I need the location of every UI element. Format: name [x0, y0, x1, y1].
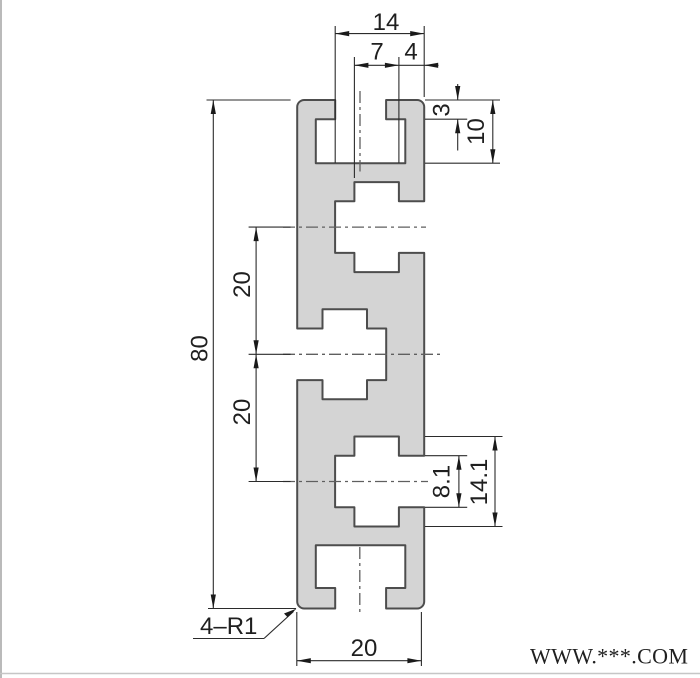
svg-text:80: 80 — [187, 335, 214, 362]
svg-text:20: 20 — [351, 635, 378, 662]
svg-text:4: 4 — [404, 39, 417, 66]
svg-text:7: 7 — [370, 39, 383, 66]
svg-text:4–R1: 4–R1 — [200, 613, 257, 640]
svg-text:14.1: 14.1 — [466, 459, 493, 506]
svg-text:20: 20 — [229, 271, 256, 298]
svg-text:WWW.***.COM: WWW.***.COM — [530, 644, 688, 669]
svg-text:10: 10 — [463, 118, 490, 145]
svg-text:3: 3 — [429, 103, 456, 116]
svg-text:8.1: 8.1 — [429, 465, 456, 498]
svg-text:20: 20 — [229, 399, 256, 426]
svg-text:14: 14 — [373, 9, 400, 36]
